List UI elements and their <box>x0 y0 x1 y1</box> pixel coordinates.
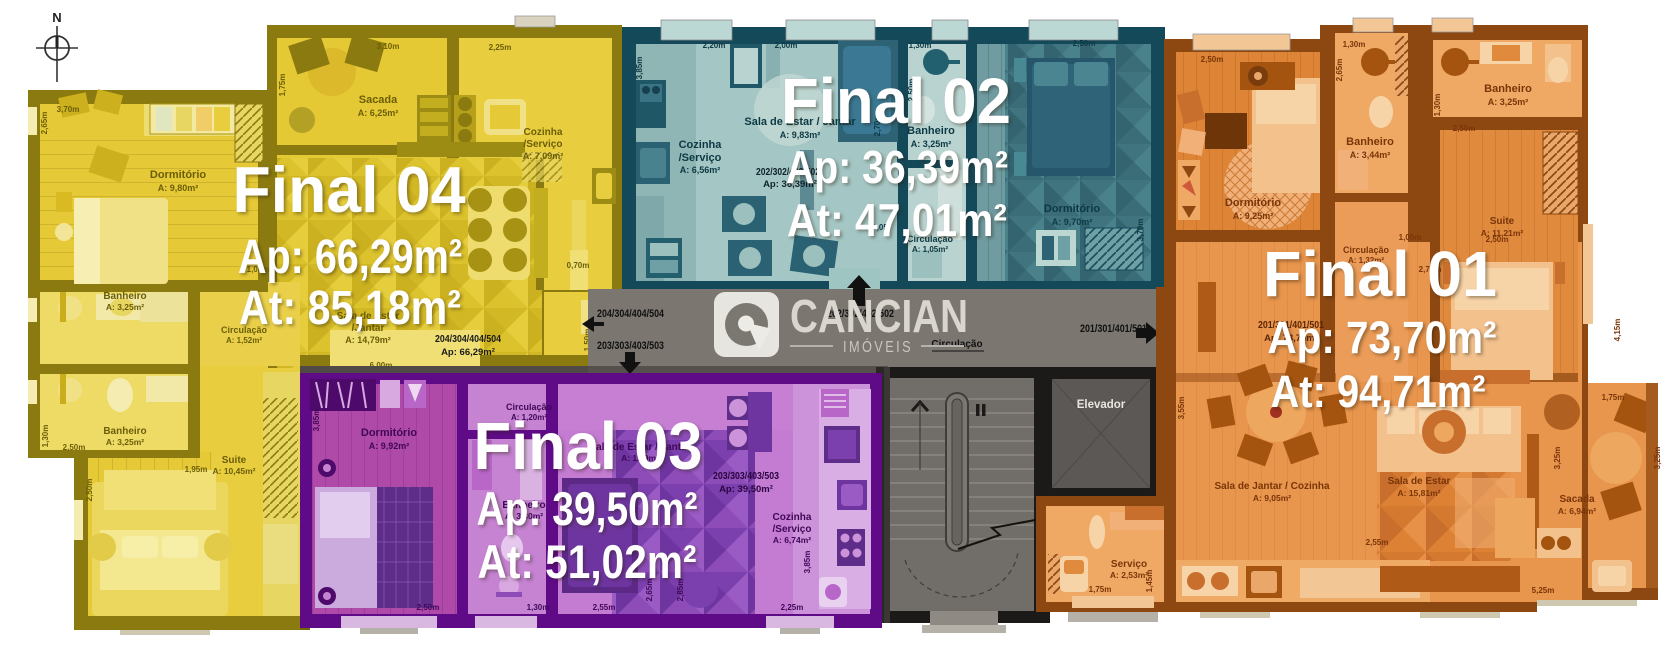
svg-text:Final 04: Final 04 <box>233 153 466 226</box>
svg-text:At: 51,02m²: At: 51,02m² <box>478 535 697 588</box>
svg-text:1,30m: 1,30m <box>1433 94 1442 117</box>
svg-text:At: 85,18m²: At: 85,18m² <box>239 282 461 335</box>
svg-text:3,10m: 3,10m <box>377 42 400 51</box>
svg-text:2,65m: 2,65m <box>40 112 49 135</box>
svg-text:1,95m: 1,95m <box>185 465 208 474</box>
svg-text:A: 9,70m²: A: 9,70m² <box>1052 217 1093 227</box>
svg-text:A: 3,25m²: A: 3,25m² <box>1488 97 1529 107</box>
svg-text:A: 3,44m²: A: 3,44m² <box>1350 150 1391 160</box>
svg-text:1,30m: 1,30m <box>41 425 50 448</box>
svg-text:2,50m: 2,50m <box>63 443 86 452</box>
svg-text:1,30m: 1,30m <box>527 603 550 612</box>
svg-text:3,25m: 3,25m <box>1653 447 1662 470</box>
svg-text:Banheiro: Banheiro <box>1484 83 1532 95</box>
svg-text:A: 9,05m²: A: 9,05m² <box>1253 493 1291 503</box>
svg-text:Ap: 66,29m²: Ap: 66,29m² <box>441 347 495 358</box>
svg-text:A: 14,79m²: A: 14,79m² <box>345 335 391 345</box>
svg-text:204/304/404/504: 204/304/404/504 <box>597 308 665 320</box>
svg-text:Ap: 39,50m²: Ap: 39,50m² <box>477 482 698 535</box>
svg-text:Ap: 66,29m²: Ap: 66,29m² <box>238 231 462 284</box>
svg-text:Dormitório: Dormitório <box>361 427 418 439</box>
svg-text:2,55m: 2,55m <box>593 603 616 612</box>
svg-text:/Serviço: /Serviço <box>679 152 722 164</box>
svg-text:Sala de Jantar / Cozinha: Sala de Jantar / Cozinha <box>1214 481 1329 492</box>
svg-text:IMÓVEIS: IMÓVEIS <box>843 337 913 356</box>
svg-text:2,50m: 2,50m <box>85 479 94 502</box>
svg-text:2,50m: 2,50m <box>1201 55 1224 64</box>
svg-text:A: 6,94m²: A: 6,94m² <box>1558 506 1596 516</box>
svg-text:203/303/403/503: 203/303/403/503 <box>713 470 779 482</box>
svg-text:/Serviço: /Serviço <box>524 139 563 150</box>
svg-text:A: 9,80m²: A: 9,80m² <box>158 183 199 193</box>
svg-text:A: 7,09m²: A: 7,09m² <box>523 151 564 161</box>
svg-text:At: 94,71m²: At: 94,71m² <box>1271 366 1486 417</box>
svg-text:Cozinha: Cozinha <box>679 139 723 151</box>
svg-text:Banheiro: Banheiro <box>103 291 146 302</box>
svg-text:A: 6,25m²: A: 6,25m² <box>358 108 399 118</box>
svg-text:203/303/403/503: 203/303/403/503 <box>597 340 664 352</box>
svg-text:Suite: Suite <box>1490 216 1515 227</box>
svg-text:1,75m: 1,75m <box>1602 393 1625 402</box>
svg-text:3,85m: 3,85m <box>635 57 644 80</box>
svg-text:Final 02: Final 02 <box>781 65 1011 137</box>
svg-text:3,85m: 3,85m <box>312 409 321 432</box>
svg-text:Cozinha: Cozinha <box>524 127 563 138</box>
svg-text:1,45m: 1,45m <box>1145 570 1154 593</box>
svg-text:A: 1,52m²: A: 1,52m² <box>226 336 262 345</box>
svg-text:N: N <box>52 10 61 25</box>
svg-text:2,50m: 2,50m <box>1073 39 1096 48</box>
svg-text:2,55m: 2,55m <box>1366 538 1389 547</box>
svg-text:2,20m: 2,20m <box>703 41 726 50</box>
svg-text:Suite: Suite <box>222 455 247 466</box>
svg-text:Sala de Estar: Sala de Estar <box>1388 476 1451 487</box>
svg-text:2,50m: 2,50m <box>1453 124 1476 133</box>
svg-text:Serviço: Serviço <box>1111 559 1147 570</box>
svg-text:A: 1,05m²: A: 1,05m² <box>912 245 948 254</box>
svg-text:Sacada: Sacada <box>359 94 398 106</box>
svg-text:1,30m: 1,30m <box>909 41 932 50</box>
svg-text:Ap: 73,70m²: Ap: 73,70m² <box>1268 312 1497 363</box>
svg-text:A: 6,74m²: A: 6,74m² <box>773 535 811 545</box>
svg-text:A: 15,81m²: A: 15,81m² <box>1398 488 1441 498</box>
svg-text:A: 3,25m²: A: 3,25m² <box>106 437 144 447</box>
svg-text:1,75m: 1,75m <box>278 74 287 97</box>
svg-text:Banheiro: Banheiro <box>103 426 146 437</box>
svg-text:Ap: 39,50m²: Ap: 39,50m² <box>719 484 773 495</box>
svg-text:2,25m: 2,25m <box>781 603 804 612</box>
svg-text:Cozinha: Cozinha <box>773 512 812 523</box>
svg-text:4,15m: 4,15m <box>1613 319 1622 342</box>
svg-text:A: 9,25m²: A: 9,25m² <box>1233 211 1274 221</box>
svg-text:Dormitório: Dormitório <box>1044 203 1101 215</box>
svg-text:Dormitório: Dormitório <box>1225 197 1282 209</box>
svg-text:1,30m: 1,30m <box>1343 40 1366 49</box>
svg-text:3,85m: 3,85m <box>803 551 812 574</box>
svg-text:Final 01: Final 01 <box>1263 238 1497 310</box>
svg-text:A: 10,45m²: A: 10,45m² <box>213 466 256 476</box>
svg-text:A: 9,92m²: A: 9,92m² <box>369 441 410 451</box>
svg-text:1,75m: 1,75m <box>1089 585 1112 594</box>
svg-text:At: 47,01m²: At: 47,01m² <box>787 194 1007 246</box>
svg-text:A: 3,25m²: A: 3,25m² <box>106 302 144 312</box>
svg-text:3,70m: 3,70m <box>1136 219 1145 242</box>
svg-text:5,25m: 5,25m <box>1532 586 1555 595</box>
svg-text:0,70m: 0,70m <box>567 261 590 270</box>
svg-text:Sacada: Sacada <box>1559 494 1594 505</box>
svg-text:2,00m: 2,00m <box>775 41 798 50</box>
svg-text:3,70m: 3,70m <box>57 105 80 114</box>
svg-text:A: 6,56m²: A: 6,56m² <box>680 165 721 175</box>
svg-text:3,55m: 3,55m <box>1177 397 1186 420</box>
svg-text:Elevador: Elevador <box>1077 399 1126 411</box>
svg-text:Dormitório: Dormitório <box>150 169 207 181</box>
svg-text:2,50m: 2,50m <box>417 603 440 612</box>
svg-text:2,25m: 2,25m <box>489 43 512 52</box>
svg-text:2,65m: 2,65m <box>1335 59 1344 82</box>
svg-text:Banheiro: Banheiro <box>1346 136 1394 148</box>
svg-text:Ap: 36,39m²: Ap: 36,39m² <box>786 141 1008 193</box>
svg-text:CANCIAN: CANCIAN <box>790 290 968 342</box>
svg-text:Final 03: Final 03 <box>474 409 703 484</box>
svg-text:/Serviço: /Serviço <box>773 524 812 535</box>
svg-text:A: 2,53m²: A: 2,53m² <box>1110 570 1148 580</box>
svg-text:3,25m: 3,25m <box>1553 447 1562 470</box>
